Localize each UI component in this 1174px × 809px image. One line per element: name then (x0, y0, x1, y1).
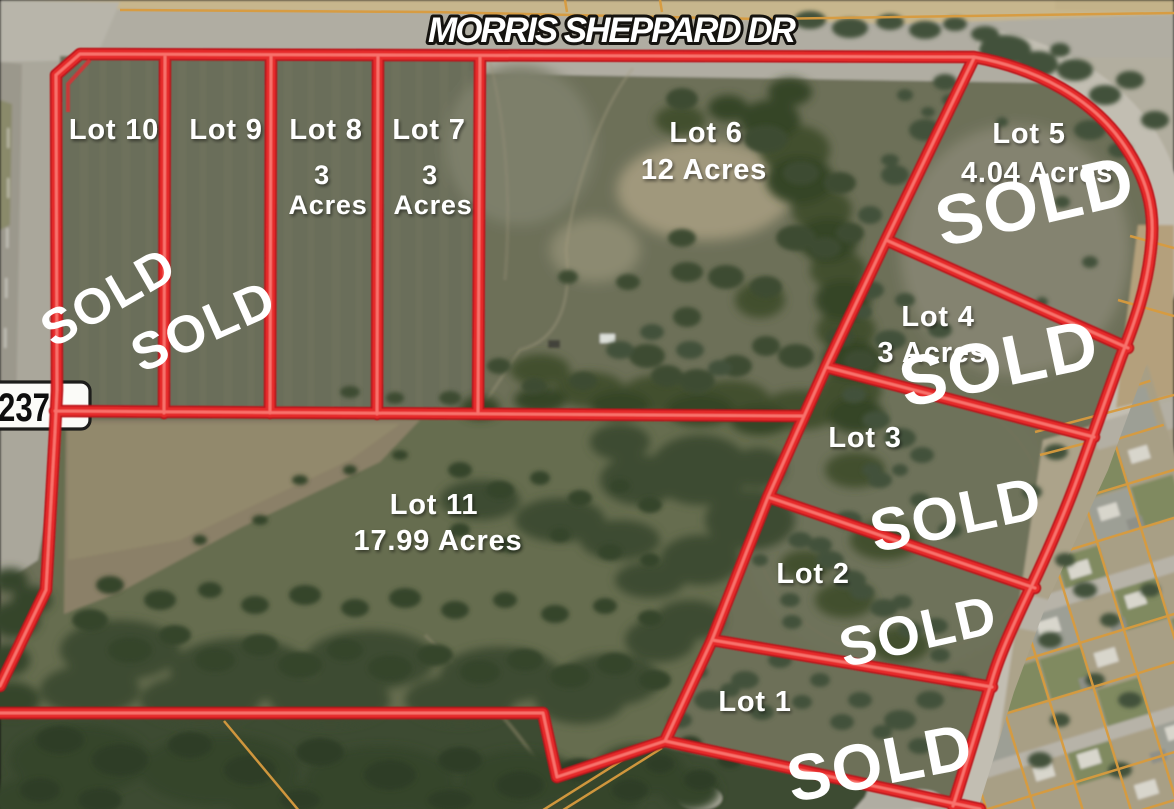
svg-text:Lot 10: Lot 10 (69, 114, 159, 146)
svg-text:3: 3 (422, 160, 438, 190)
svg-text:MORRIS SHEPPARD DR: MORRIS SHEPPARD DR (428, 11, 797, 50)
svg-text:Lot 6: Lot 6 (669, 117, 742, 149)
svg-text:Lot 4: Lot 4 (901, 301, 974, 333)
svg-text:Lot 9: Lot 9 (189, 114, 262, 146)
svg-text:Acres: Acres (393, 190, 472, 220)
svg-text:Acres: Acres (288, 190, 367, 220)
svg-text:Lot 11: Lot 11 (390, 489, 479, 521)
svg-text:17.99 Acres: 17.99 Acres (354, 525, 523, 557)
svg-text:Lot 5: Lot 5 (992, 118, 1065, 150)
svg-text:12 Acres: 12 Acres (641, 154, 767, 186)
svg-text:Lot 1: Lot 1 (718, 686, 791, 718)
svg-text:Lot 7: Lot 7 (392, 114, 465, 146)
svg-text:Lot 8: Lot 8 (289, 114, 362, 146)
svg-text:Lot 3: Lot 3 (828, 422, 901, 454)
svg-text:Lot 2: Lot 2 (776, 558, 849, 590)
svg-text:3: 3 (314, 160, 330, 190)
svg-text:237: 237 (0, 386, 50, 430)
